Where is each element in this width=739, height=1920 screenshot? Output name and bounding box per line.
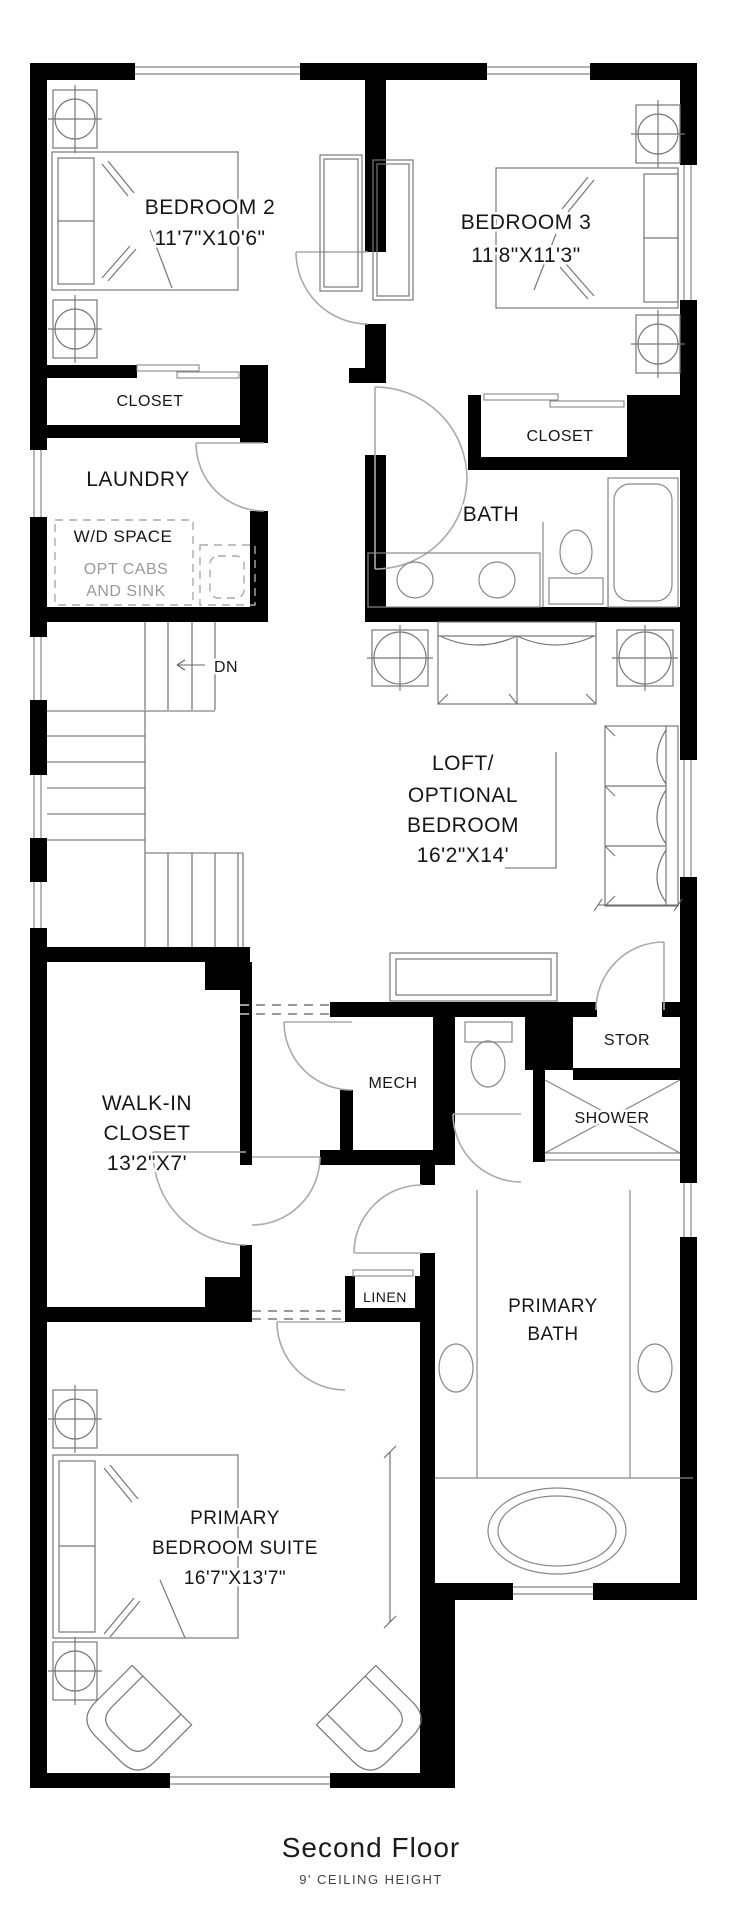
loveseat bbox=[438, 622, 596, 704]
linen-label: LINEN bbox=[363, 1289, 407, 1305]
opt-cabs-note: OPT CABS bbox=[84, 561, 169, 578]
dimension-line bbox=[384, 1446, 396, 1628]
hall-bath-fixtures bbox=[368, 478, 678, 607]
bathtub bbox=[608, 478, 678, 607]
bedroom2-furniture bbox=[48, 85, 362, 363]
walk-in-closet-line1: WALK-IN bbox=[102, 1092, 192, 1115]
mech-label: MECH bbox=[368, 1075, 417, 1092]
soaking-tub bbox=[488, 1488, 626, 1574]
primary-bedroom-line2: BEDROOM SUITE bbox=[152, 1538, 318, 1559]
doors bbox=[137, 252, 664, 1390]
bed bbox=[52, 152, 238, 290]
bath-label: BATH bbox=[463, 503, 519, 526]
loft-furniture bbox=[367, 622, 682, 1001]
dresser bbox=[320, 155, 362, 291]
stor-label: STOR bbox=[604, 1032, 650, 1049]
wd-space-label: W/D SPACE bbox=[74, 527, 173, 546]
closet-bedroom2-label: CLOSET bbox=[116, 393, 183, 410]
floor-title: Second Floor bbox=[282, 1832, 461, 1863]
primary-bath-line2: BATH bbox=[527, 1324, 578, 1345]
floor-plan-svg: BEDROOM 2 11'7"X10'6" BEDROOM 3 11'8"X11… bbox=[0, 0, 739, 1920]
bed bbox=[496, 168, 678, 308]
walls bbox=[30, 63, 697, 1788]
toilet bbox=[465, 1022, 512, 1087]
shower-label: SHOWER bbox=[575, 1110, 650, 1127]
primary-bedroom-dims: 16'7"X13'7" bbox=[184, 1568, 286, 1589]
dimension-line bbox=[594, 899, 682, 911]
bedroom3-dims: 11'8"X11'3" bbox=[471, 244, 580, 267]
primary-bath-line1: PRIMARY bbox=[508, 1296, 598, 1317]
ceiling-height-note: 9' CEILING HEIGHT bbox=[299, 1872, 443, 1887]
toilet bbox=[549, 530, 603, 604]
bedroom3-label: BEDROOM 3 bbox=[461, 211, 592, 234]
primary-bedroom-line1: PRIMARY bbox=[190, 1508, 280, 1529]
footer: Second Floor 9' CEILING HEIGHT bbox=[282, 1832, 461, 1887]
bedroom2-dims: 11'7"X10'6" bbox=[155, 227, 266, 250]
walk-in-closet-dims: 13'2"X7' bbox=[107, 1152, 187, 1175]
stairs-down-label: DN bbox=[214, 659, 238, 676]
loft-label-line2: OPTIONAL bbox=[408, 784, 518, 807]
console-table bbox=[390, 953, 557, 1001]
bedroom2-label: BEDROOM 2 bbox=[145, 196, 276, 219]
loft-dims: 16'2"X14' bbox=[417, 844, 509, 867]
walk-in-closet-line2: CLOSET bbox=[103, 1122, 190, 1145]
closet-bedroom3-label: CLOSET bbox=[526, 428, 593, 445]
loft-label-line1: LOFT/ bbox=[432, 752, 494, 775]
loft-label-line3: BEDROOM bbox=[407, 814, 519, 837]
dimension-line bbox=[505, 752, 556, 868]
floor-plan-page: BEDROOM 2 11'7"X10'6" BEDROOM 3 11'8"X11… bbox=[0, 0, 739, 1920]
laundry-label: LAUNDRY bbox=[86, 468, 189, 491]
sofa bbox=[605, 726, 678, 906]
bedroom3-furniture bbox=[373, 100, 685, 378]
opt-sink-note: AND SINK bbox=[86, 583, 166, 600]
